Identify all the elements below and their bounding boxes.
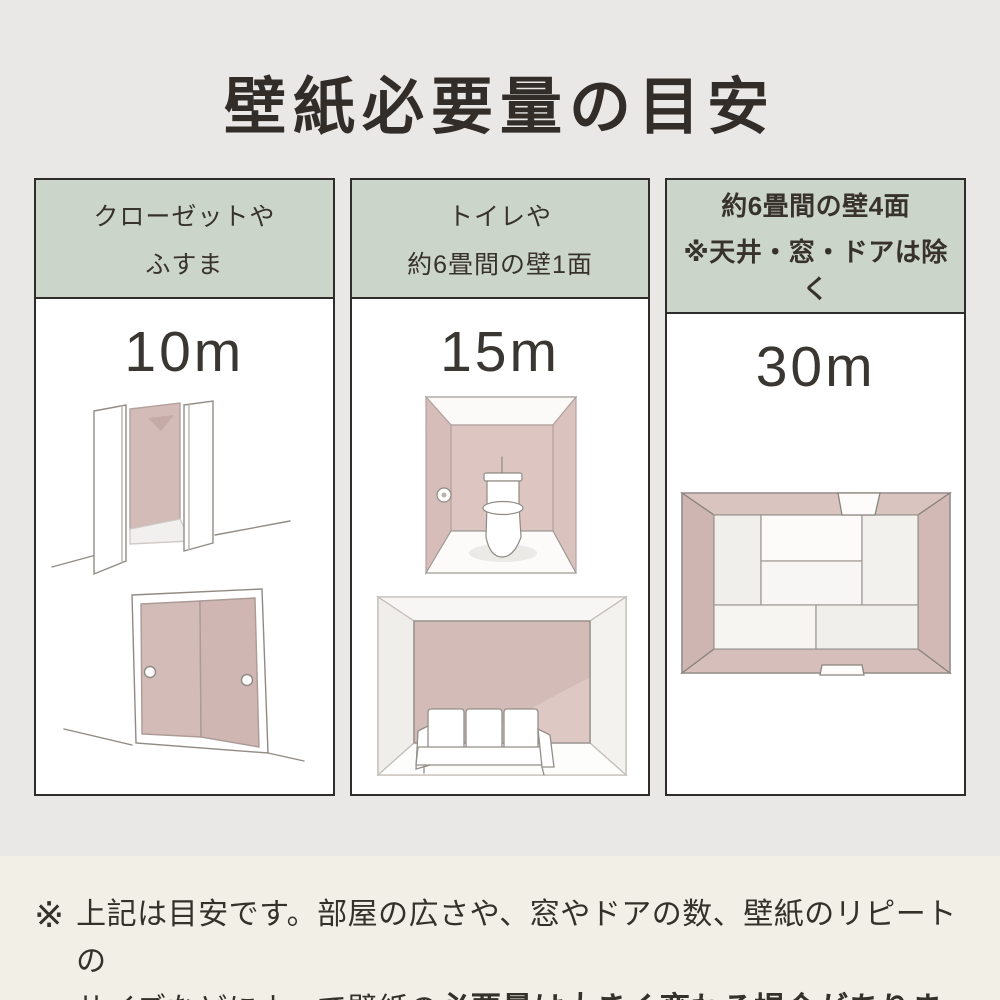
toilet-room-illustration — [354, 385, 646, 581]
meter-value: 10m — [36, 319, 333, 385]
column-illustrations — [667, 400, 964, 794]
column-header: クローゼットや ふすま — [36, 180, 333, 299]
room-top-view-illustration — [670, 477, 962, 687]
column-closet-fusuma: クローゼットや ふすま 10m — [34, 178, 335, 796]
column-toilet-wall: トイレや 約6畳間の壁1面 15m — [350, 178, 651, 796]
fusuma-illustration — [38, 577, 330, 785]
footnote: ※ 上記は目安です。部屋の広さや、窓やドアの数、壁紙のリピートの サイズなどによ… — [0, 856, 1000, 1000]
sofa-room-illustration — [354, 585, 646, 785]
footnote-row: ※ 上記は目安です。部屋の広さや、窓やドアの数、壁紙のリピートの サイズなどによ… — [34, 892, 972, 1000]
footnote-marker: ※ — [34, 892, 64, 939]
column-header: 約6畳間の壁4面 ※天井・窓・ドアは除く — [667, 180, 964, 314]
column-illustrations — [36, 385, 333, 794]
column-header-line2: 約6畳間の壁1面 — [407, 245, 593, 281]
closet-illustration — [38, 385, 330, 585]
column-header-line1: クローゼットや — [93, 197, 275, 233]
column-header-line1: トイレや — [448, 197, 552, 233]
footnote-line2-regular: サイズなどによって壁紙の — [76, 993, 439, 1000]
footnote-line1: 上記は目安です。部屋の広さや、窓やドアの数、壁紙のリピートの — [76, 898, 957, 978]
footnote-text: 上記は目安です。部屋の広さや、窓やドアの数、壁紙のリピートの サイズなどによって… — [76, 892, 972, 1000]
column-header: トイレや 約6畳間の壁1面 — [352, 180, 649, 299]
column-header-line2: ※天井・窓・ドアは除く — [671, 232, 960, 306]
wallpaper-guide-page: 壁紙必要量の目安 クローゼットや ふすま 10m — [0, 0, 1000, 1000]
column-illustrations — [352, 385, 649, 794]
meter-value: 15m — [352, 319, 649, 385]
meter-value: 30m — [667, 334, 964, 400]
column-header-line1: 約6畳間の壁4面 — [721, 186, 910, 223]
column-four-walls: 約6畳間の壁4面 ※天井・窓・ドアは除く 30m — [665, 178, 966, 796]
guide-columns: クローゼットや ふすま 10m — [0, 178, 1000, 796]
column-header-line2: ふすま — [145, 245, 223, 281]
page-title: 壁紙必要量の目安 — [0, 0, 1000, 146]
